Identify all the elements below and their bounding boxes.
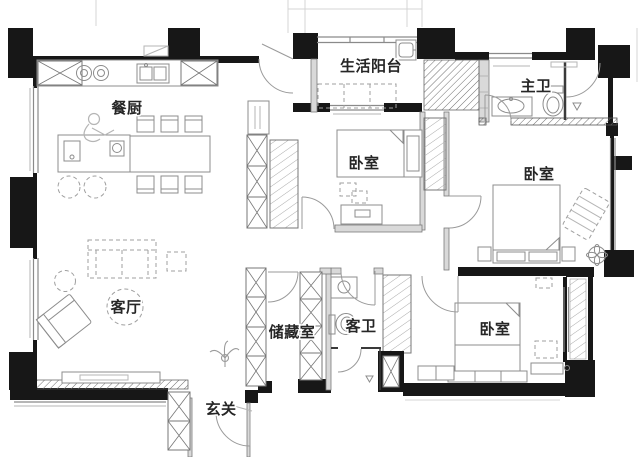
bed-icon-south xyxy=(448,303,527,382)
label-dining-kitchen: 餐厨 xyxy=(111,99,142,117)
label-bedroom-south: 卧室 xyxy=(479,320,510,338)
door-arc-bedroom-north xyxy=(302,197,334,229)
label-storage: 储藏室 xyxy=(269,323,316,341)
sofa-icon xyxy=(88,240,156,278)
window-left-kitchen xyxy=(30,86,38,173)
wardrobe-guest-bath-side xyxy=(383,275,411,353)
nightstand xyxy=(478,247,491,261)
kitchen-island xyxy=(58,135,130,172)
ottoman-icon xyxy=(55,271,76,292)
nightstand xyxy=(562,247,575,261)
bed-icon-east xyxy=(493,185,560,263)
label-guest-bath: 客卫 xyxy=(344,317,376,335)
door-arc-bedroom-south xyxy=(422,276,458,312)
door-arc-storage xyxy=(268,272,298,302)
wardrobe-bedroom-north xyxy=(270,140,298,228)
pantry-cabinet xyxy=(247,135,267,228)
guest-shower xyxy=(331,348,381,390)
side-table-icon xyxy=(167,252,186,271)
dining-table xyxy=(130,136,210,172)
bath-sink-icon xyxy=(492,97,532,116)
lounge-chair-icon xyxy=(562,187,610,240)
duct-shaft xyxy=(424,60,479,110)
shaft-column xyxy=(378,351,404,392)
label-bedroom-north: 卧室 xyxy=(348,154,379,172)
range-hood-icon xyxy=(144,46,168,56)
door-arc-bedroom-east xyxy=(449,196,481,228)
shoe-cabinet xyxy=(168,392,190,450)
guest-sink-icon xyxy=(331,277,357,298)
bench-cabinet xyxy=(418,366,454,380)
cabinet-x-left xyxy=(38,61,82,85)
stool xyxy=(58,176,80,198)
floor-plan: 餐厨 生活阳台 主卫 卧室 卧室 客厅 储藏室 客卫 卧室 玄关 xyxy=(0,0,640,457)
armchair-icon xyxy=(36,294,91,348)
label-entry: 玄关 xyxy=(205,400,236,418)
label-master-bath: 主卫 xyxy=(520,77,551,95)
floor-plan-svg: 餐厨 生活阳台 主卫 卧室 卧室 客厅 储藏室 客卫 卧室 玄关 xyxy=(0,0,640,457)
door-arc-balcony xyxy=(259,44,293,93)
window-living-bottom xyxy=(14,402,166,406)
label-bedroom-east: 卧室 xyxy=(523,165,554,183)
window-bedroom-north xyxy=(330,106,384,115)
window-left-living xyxy=(30,258,38,340)
label-living-room: 客厅 xyxy=(109,298,141,316)
plant-icon xyxy=(210,341,239,367)
stool xyxy=(84,176,106,198)
tv-cabinet xyxy=(62,372,160,383)
storage-wardrobe-left xyxy=(246,268,266,386)
wardrobe-bedroom-east xyxy=(424,118,446,190)
laundry-sink-icon xyxy=(396,40,416,60)
ac-unit xyxy=(536,278,552,288)
window-master-bath xyxy=(489,54,532,59)
nightstand xyxy=(340,183,356,196)
cabinet-x-right xyxy=(181,61,217,85)
fridge xyxy=(248,101,269,134)
label-balcony: 生活阳台 xyxy=(340,57,402,75)
